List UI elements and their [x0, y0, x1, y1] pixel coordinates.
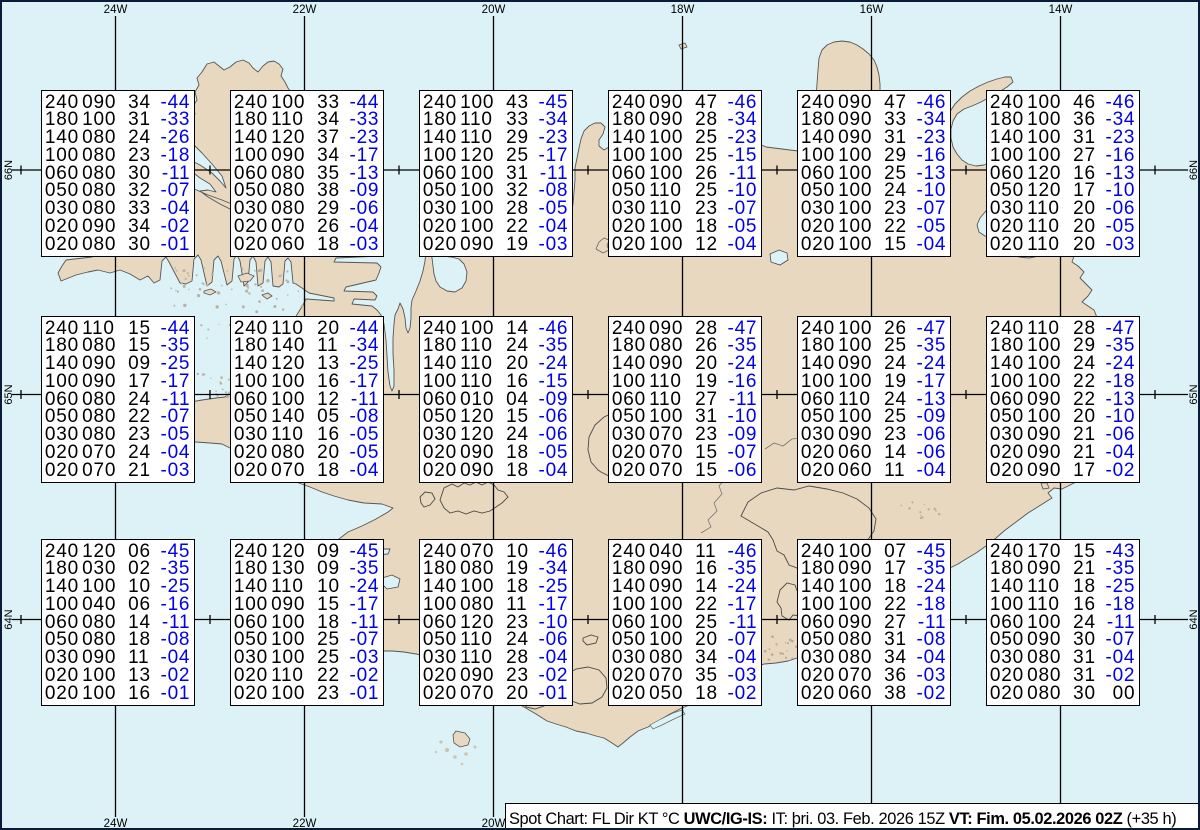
- svg-text:20W: 20W: [482, 818, 506, 828]
- svg-text:14W: 14W: [1049, 4, 1073, 16]
- svg-text:24W: 24W: [104, 818, 128, 828]
- svg-text:16W: 16W: [860, 4, 884, 16]
- svg-text:66N: 66N: [1188, 160, 1198, 180]
- svg-text:18W: 18W: [671, 4, 695, 16]
- svg-text:64N: 64N: [3, 609, 15, 629]
- svg-text:66N: 66N: [3, 160, 15, 180]
- svg-text:65N: 65N: [3, 384, 15, 404]
- svg-text:24W: 24W: [104, 4, 128, 16]
- svg-text:22W: 22W: [293, 4, 317, 16]
- svg-text:64N: 64N: [1188, 609, 1198, 629]
- svg-text:65N: 65N: [1188, 384, 1198, 404]
- svg-text:22W: 22W: [293, 818, 317, 828]
- svg-text:20W: 20W: [482, 4, 506, 16]
